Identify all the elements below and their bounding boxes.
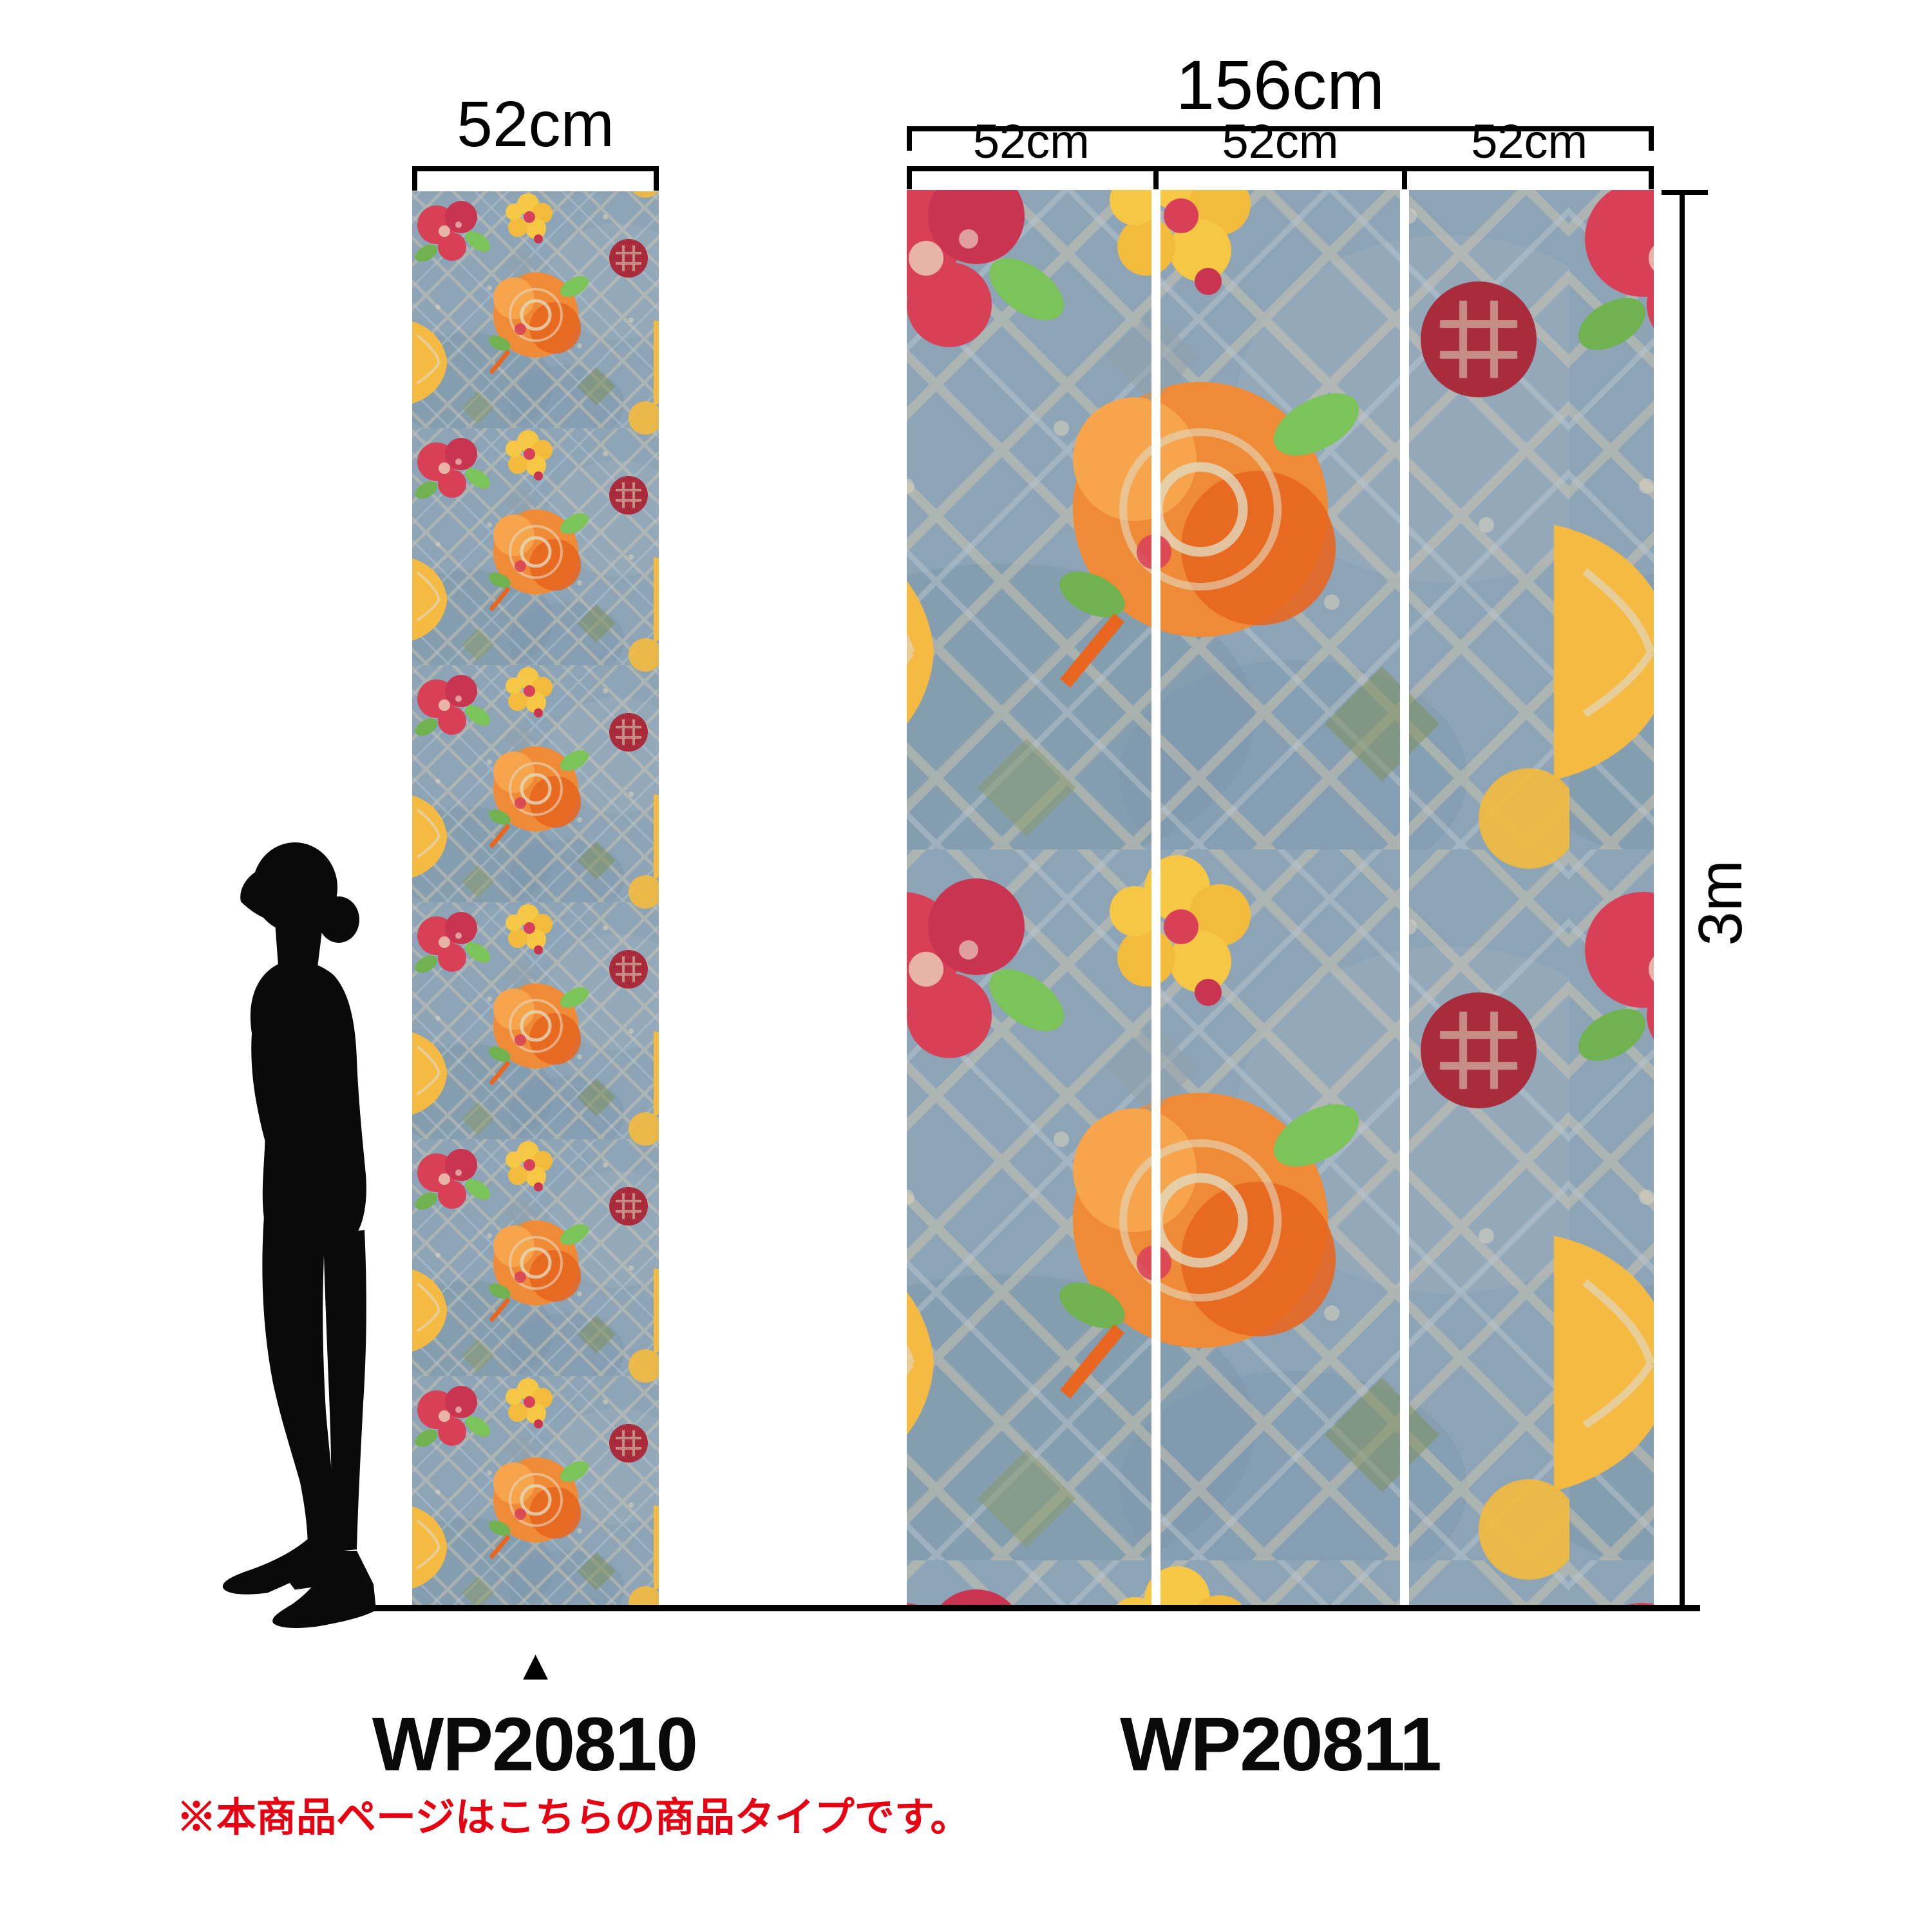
right-total-width-label: 156cm	[907, 50, 1654, 120]
right-strip-width-dimension	[907, 166, 1654, 189]
product-type-note: ※本商品ページはこちらの商品タイプです。	[176, 1798, 971, 1838]
strip-width-label: 52cm	[1156, 118, 1405, 166]
height-label: 3m	[1689, 851, 1753, 954]
ground-line	[341, 1605, 1700, 1611]
wallpaper-panel-wp20811	[907, 190, 1654, 1608]
dimension-tick	[1402, 171, 1407, 189]
right-product-code: WP20811	[1087, 1707, 1473, 1783]
height-dimension-top-tick	[1662, 190, 1708, 195]
dimension-tick	[1153, 171, 1159, 189]
selected-product-marker: ▲	[412, 1643, 659, 1686]
panel-seam	[1151, 190, 1160, 1608]
strip-width-label: 52cm	[907, 118, 1156, 166]
dimension-tick	[654, 171, 659, 191]
wallpaper-strip-wp20810	[412, 191, 659, 1608]
size-comparison-diagram: 52cm 156cm 52cm 52cm 52cm 3m	[0, 0, 1932, 1932]
dimension-tick	[1649, 171, 1654, 189]
left-roll-width-label: 52cm	[412, 92, 659, 156]
right-strip-width-labels: 52cm 52cm 52cm	[907, 118, 1654, 166]
panel-seam	[1400, 190, 1409, 1608]
height-dimension-line	[1680, 190, 1685, 1606]
left-product-code: WP20810	[341, 1707, 728, 1783]
dimension-tick	[412, 171, 417, 191]
person-silhouette	[213, 837, 409, 1636]
strip-width-label: 52cm	[1405, 118, 1654, 166]
left-roll-width-dimension	[412, 166, 659, 191]
dimension-tick	[907, 171, 912, 189]
